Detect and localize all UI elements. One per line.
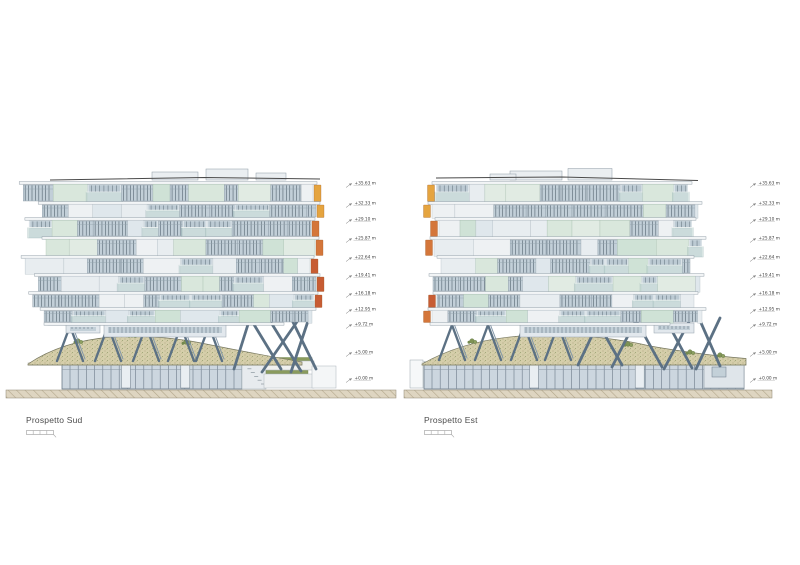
shrub: [468, 339, 477, 344]
level-value: +9.72 m: [759, 321, 778, 327]
level-marker: +19.41 m: [346, 272, 376, 279]
level-marker: +19.41 m: [750, 272, 780, 279]
est-graphics: +35.63 m+32.33 m+29.10 m+25.87 m+22.64 m…: [404, 169, 780, 399]
floor-band: [42, 237, 323, 257]
floor-band: [429, 274, 704, 293]
scale-bar: [424, 428, 468, 440]
floor-band: [424, 308, 707, 324]
level-marker: +29.10 m: [750, 216, 780, 223]
level-value: +22.64 m: [355, 254, 376, 260]
level-value: +0.00 m: [355, 375, 374, 381]
accent-panel: [317, 277, 324, 292]
floor-band: [38, 202, 324, 219]
level-value: +32.33 m: [355, 200, 376, 206]
level-marker: +9.72 m: [750, 321, 777, 328]
level-value: +5.00 m: [355, 349, 374, 355]
level-marker: +12.95 m: [346, 306, 376, 313]
level-annotations: +35.63 m+32.33 m+29.10 m+25.87 m+22.64 m…: [750, 180, 780, 382]
floor-band: [25, 218, 319, 238]
south-elevation-drawing: +35.63 m+32.33 m+29.10 m+25.87 m+22.64 m…: [4, 166, 398, 444]
floor-band: [437, 256, 694, 275]
accent-panel: [311, 259, 318, 274]
level-value: +29.10 m: [759, 216, 780, 222]
level-marker: +25.87 m: [346, 235, 376, 242]
east-elevation-drawing: +35.63 m+32.33 m+29.10 m+25.87 m+22.64 m…: [402, 166, 796, 444]
level-value: +12.95 m: [355, 306, 376, 312]
level-value: +16.18 m: [759, 290, 780, 296]
level-value: +9.72 m: [355, 321, 374, 327]
level-annotations: +35.63 m+32.33 m+29.10 m+25.87 m+22.64 m…: [346, 180, 376, 382]
level-marker: +35.63 m: [346, 180, 376, 187]
floor-band: [19, 182, 321, 203]
level-value: +22.64 m: [759, 254, 780, 260]
accent-panel: [316, 240, 323, 256]
accent-panel: [426, 240, 433, 256]
ground-hatch: [404, 390, 772, 398]
level-marker: +5.00 m: [346, 349, 373, 356]
level-marker: +5.00 m: [750, 349, 777, 356]
level-marker: +25.87 m: [750, 235, 780, 242]
level-value: +12.95 m: [759, 306, 780, 312]
accent-panel: [424, 311, 431, 323]
level-marker: +16.18 m: [346, 290, 376, 297]
level-marker: +35.63 m: [750, 180, 780, 187]
elevation-south: +35.63 m+32.33 m+29.10 m+25.87 m+22.64 m…: [4, 166, 398, 444]
accent-panel: [424, 205, 431, 218]
level-value: +25.87 m: [759, 235, 780, 241]
level-marker: +29.10 m: [346, 216, 376, 223]
level-value: +16.18 m: [355, 290, 376, 296]
floor-band: [29, 292, 322, 309]
floor-band: [429, 292, 699, 309]
suspended-volume: [104, 324, 226, 337]
tower-facade: [19, 182, 324, 326]
shrub: [686, 350, 695, 355]
level-marker: +22.64 m: [346, 254, 376, 261]
level-value: +35.63 m: [759, 180, 780, 186]
elevation-south-label: Prospetto Sud: [26, 415, 82, 425]
level-value: +19.41 m: [355, 272, 376, 278]
accent-panel: [429, 295, 436, 308]
level-marker: +9.72 m: [346, 321, 373, 328]
level-marker: +12.95 m: [750, 306, 780, 313]
level-marker: +0.00 m: [750, 375, 777, 382]
floor-band: [426, 237, 707, 257]
level-marker: +32.33 m: [346, 200, 376, 207]
level-marker: +16.18 m: [750, 290, 780, 297]
ground-hatch: [6, 390, 396, 398]
elevation-east-label: Prospetto Est: [424, 415, 478, 425]
level-value: +25.87 m: [355, 235, 376, 241]
suspended-volume: [520, 324, 646, 337]
level-marker: +32.33 m: [750, 200, 780, 207]
level-value: +29.10 m: [355, 216, 376, 222]
accent-panel: [315, 295, 322, 308]
level-value: +5.00 m: [759, 349, 778, 355]
accent-panel: [312, 221, 319, 237]
elevation-east: +35.63 m+32.33 m+29.10 m+25.87 m+22.64 m…: [402, 166, 796, 444]
accent-panel: [317, 205, 324, 218]
roof: [436, 169, 698, 181]
level-value: +0.00 m: [759, 375, 778, 381]
tower-facade: [424, 182, 707, 326]
level-marker: +22.64 m: [750, 254, 780, 261]
level-value: +19.41 m: [759, 272, 780, 278]
floor-band: [428, 182, 693, 203]
floor-band: [424, 202, 703, 219]
accent-panel: [431, 221, 438, 237]
floor-band: [431, 218, 697, 238]
level-marker: +0.00 m: [346, 375, 373, 382]
sud-graphics: +35.63 m+32.33 m+29.10 m+25.87 m+22.64 m…: [6, 169, 396, 398]
floor-band: [21, 256, 318, 275]
drawing-sheet: +35.63 m+32.33 m+29.10 m+25.87 m+22.64 m…: [0, 0, 800, 565]
accent-panel: [314, 185, 321, 202]
level-value: +32.33 m: [759, 200, 780, 206]
floor-band: [34, 274, 324, 293]
floor-band: [40, 308, 316, 324]
scale-bar: [26, 428, 70, 440]
level-value: +35.63 m: [355, 180, 376, 186]
accent-panel: [428, 185, 435, 202]
roof: [50, 169, 320, 180]
